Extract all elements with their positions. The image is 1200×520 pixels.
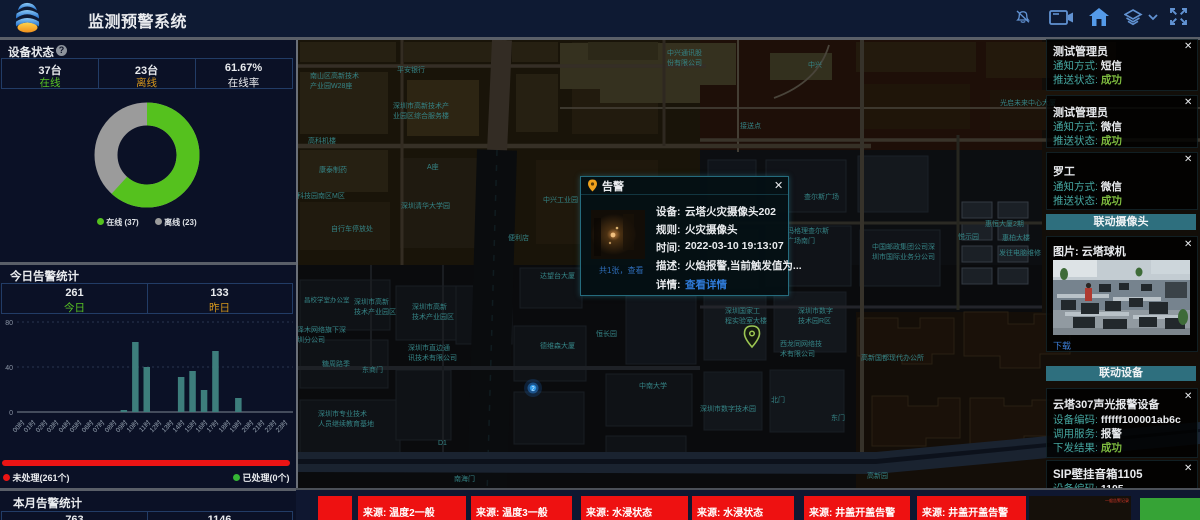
svg-text:南海门: 南海门 — [454, 474, 475, 483]
svg-text:昌校学室办公室: 昌校学室办公室 — [304, 295, 350, 304]
svg-text:中兴工业园: 中兴工业园 — [543, 195, 578, 204]
svg-text:深圳市高新: 深圳市高新 — [412, 302, 447, 311]
svg-text:深圳市数字: 深圳市数字 — [798, 306, 833, 315]
svg-text:查尔斯广场: 查尔斯广场 — [804, 192, 839, 201]
svg-text:德维森大厦: 德维森大厦 — [540, 341, 575, 350]
svg-text:惠恒大厦2期: 惠恒大厦2期 — [985, 219, 1024, 228]
svg-text:中南大学: 中南大学 — [639, 381, 667, 390]
svg-text:D1: D1 — [438, 440, 447, 447]
svg-text:圳分公司: 圳分公司 — [297, 335, 325, 344]
svg-text:产业园W28座: 产业园W28座 — [310, 81, 352, 90]
svg-text:高新国都现代办公所: 高新国都现代办公所 — [861, 353, 924, 362]
svg-text:东门: 东门 — [831, 413, 845, 422]
svg-text:南山区高新技术: 南山区高新技术 — [310, 71, 359, 80]
svg-text:恒长园: 恒长园 — [596, 329, 617, 338]
svg-text:发往电脑维修: 发往电脑维修 — [999, 248, 1041, 257]
svg-text:份有限公司: 份有限公司 — [667, 58, 702, 67]
svg-text:科技园南区M区: 科技园南区M区 — [297, 191, 345, 200]
svg-text:程实验室大楼: 程实验室大楼 — [725, 316, 767, 325]
svg-text:广场南门: 广场南门 — [787, 236, 815, 245]
svg-text:0: 0 — [9, 410, 13, 417]
svg-text:圳市国际业务分公司: 圳市国际业务分公司 — [872, 252, 935, 261]
svg-text:人员继续教育基地: 人员继续教育基地 — [318, 419, 374, 428]
svg-text:平安银行: 平安银行 — [397, 65, 425, 74]
svg-text:悦示园: 悦示园 — [958, 232, 979, 241]
svg-text:康泰制药: 康泰制药 — [319, 165, 347, 174]
svg-text:北门: 北门 — [771, 395, 785, 404]
svg-text:80: 80 — [5, 320, 13, 327]
svg-text:中兴通讯股: 中兴通讯股 — [667, 48, 702, 57]
svg-text:糖周路季: 糖周路季 — [322, 359, 350, 368]
svg-text:40: 40 — [5, 365, 13, 372]
svg-text:深圳市直边通: 深圳市直边通 — [408, 343, 450, 352]
svg-text:高科机楼: 高科机楼 — [308, 136, 336, 145]
svg-text:中国邮政集团公司深: 中国邮政集团公司深 — [872, 242, 935, 251]
svg-text:技术园R区: 技术园R区 — [798, 316, 831, 325]
svg-text:讯技术有限公司: 讯技术有限公司 — [408, 353, 457, 362]
svg-text:泽木网络旗下深: 泽木网络旗下深 — [297, 325, 346, 334]
svg-text:深圳国家工: 深圳国家工 — [725, 306, 760, 315]
svg-text:术有限公司: 术有限公司 — [780, 349, 815, 358]
svg-text:自行车停放处: 自行车停放处 — [331, 224, 373, 233]
svg-text:中兴: 中兴 — [808, 60, 822, 69]
svg-text:技术产业园区: 技术产业园区 — [412, 312, 454, 321]
svg-text:便利店: 便利店 — [508, 233, 529, 242]
svg-text:玛格理查尔斯: 玛格理查尔斯 — [787, 226, 829, 235]
svg-text:西龙同网络技: 西龙同网络技 — [780, 339, 822, 348]
svg-text:业园区综合服务楼: 业园区综合服务楼 — [393, 111, 449, 120]
svg-text:高新园: 高新园 — [867, 471, 888, 480]
svg-text:东商门: 东商门 — [362, 365, 383, 374]
svg-text:接送点: 接送点 — [740, 121, 761, 130]
svg-text:A座: A座 — [427, 162, 439, 171]
svg-text:达望台大厦: 达望台大厦 — [540, 271, 575, 280]
svg-text:深圳清华大学园: 深圳清华大学园 — [401, 201, 450, 210]
svg-text:深圳市专业技术: 深圳市专业技术 — [318, 409, 367, 418]
svg-text:深圳市高新技术产: 深圳市高新技术产 — [393, 101, 449, 110]
svg-text:深圳市高新: 深圳市高新 — [354, 297, 389, 306]
svg-text:惠柏大楼: 惠柏大楼 — [1002, 233, 1030, 242]
svg-text:深圳市数字技术园: 深圳市数字技术园 — [700, 404, 756, 413]
svg-text:技术产业园区: 技术产业园区 — [354, 307, 396, 316]
